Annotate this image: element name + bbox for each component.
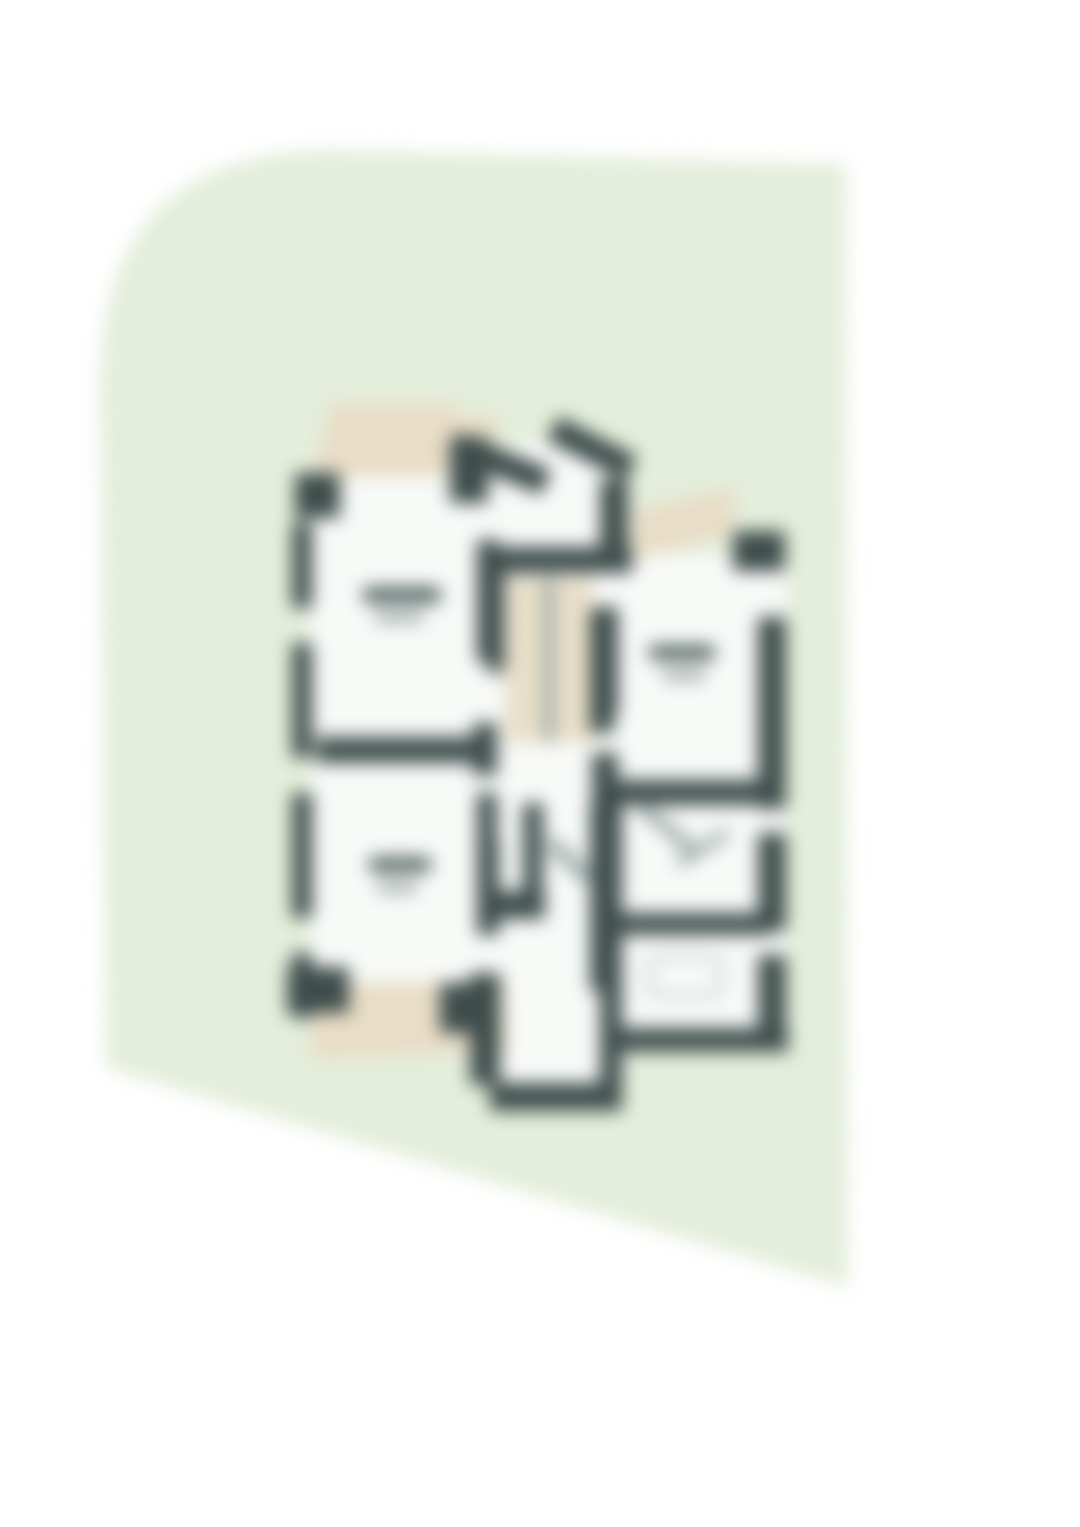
wall-left-seg-3 <box>292 793 312 918</box>
page-background: { "page": { "width": 1080, "height": 152… <box>0 0 1080 1527</box>
room-lower-left <box>310 762 480 982</box>
wall-midbottom-connector <box>497 891 545 919</box>
wall-right-unit-top-right <box>733 531 785 571</box>
wall-bottomroom-right <box>600 973 622 1093</box>
wall-right-horizontal-2 <box>610 913 772 935</box>
wall-corner-bottom-left <box>287 967 349 1013</box>
wall-below-entry <box>490 547 632 573</box>
label-room-right-line2 <box>662 671 706 680</box>
wall-right-unit-bottom <box>620 1028 788 1052</box>
label-room-lower-left-line2 <box>376 883 418 892</box>
label-room-upper-left-line1 <box>362 587 442 603</box>
room-bottom-porch <box>495 955 605 1083</box>
wall-mid-horizontal <box>317 737 479 763</box>
wall-corner-top-left <box>295 473 340 518</box>
label-room-lower-left-line1 <box>368 857 432 872</box>
stair-center-divider <box>545 578 553 742</box>
bathtub <box>647 955 723 997</box>
blurred-scene <box>0 0 1080 1527</box>
wall-right-horizontal-1 <box>610 780 772 805</box>
terrace-right <box>632 486 734 559</box>
wall-midbottom-inner <box>523 803 543 891</box>
wall-left-seg-2 <box>292 643 312 758</box>
wall-right-unit-left-2 <box>592 607 618 715</box>
wall-left-seg-1 <box>292 523 312 608</box>
wall-bottomroom-left <box>470 973 500 1085</box>
label-room-upper-left-line2 <box>374 613 424 622</box>
wall-midbottom-left <box>477 793 497 923</box>
wall-right-seg-3 <box>758 955 786 1035</box>
floorplan <box>280 395 800 1125</box>
label-room-right-line1 <box>648 645 716 660</box>
wall-midbottom-right <box>590 803 622 991</box>
wall-stair-left <box>488 573 504 673</box>
